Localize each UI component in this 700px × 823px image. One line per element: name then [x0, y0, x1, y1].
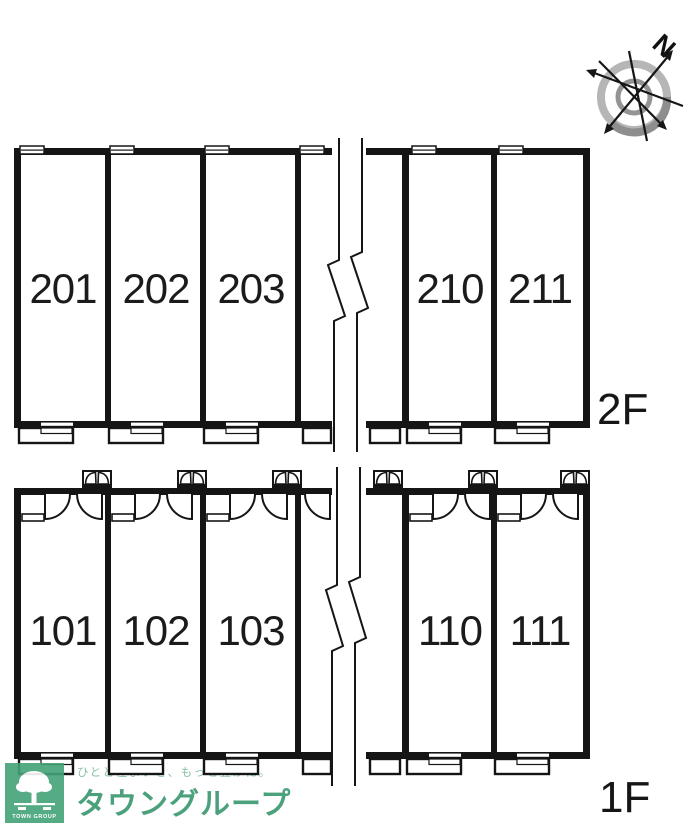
top-window-mark-line: [413, 150, 435, 151]
window-line: [429, 421, 461, 423]
room-label-201: 201: [17, 268, 109, 310]
entrance-window-sill: [498, 514, 520, 521]
top-window-mark-line: [301, 150, 323, 151]
window-line: [41, 421, 73, 423]
window-line: [131, 421, 163, 423]
room-label-210: 210: [404, 268, 496, 310]
entrance-door-swing: [465, 494, 490, 519]
top-window-mark-line: [21, 150, 43, 151]
entrance-window-sill: [410, 514, 432, 521]
balcony-window-sash: [226, 428, 257, 434]
entrance-door-swing: [521, 494, 546, 519]
entrance-door-swing-partial: [305, 494, 330, 519]
top-window-mark-line: [206, 150, 228, 151]
outer-wall-top-2f: [14, 148, 332, 155]
room-label-111: 111: [494, 610, 586, 652]
entrance-door-swing: [135, 494, 160, 519]
entrance-window-sill: [112, 514, 134, 521]
window-line: [517, 421, 549, 423]
room-label-103: 103: [205, 610, 297, 652]
break-line: [351, 138, 368, 452]
balcony-partial: [303, 428, 331, 443]
break-line: [328, 138, 345, 452]
room-label-203: 203: [205, 268, 297, 310]
balcony-window-sash: [429, 759, 460, 765]
top-window-mark-line: [111, 150, 133, 151]
window-line: [226, 752, 258, 754]
plan-linework: [14, 138, 590, 786]
compass-north-label: N: [647, 28, 682, 63]
floor-label-2f: 2F: [597, 388, 648, 432]
window-line: [41, 752, 73, 754]
entrance-door-swing: [45, 494, 70, 519]
balcony-window-sash: [131, 428, 162, 434]
window-line: [517, 752, 549, 754]
entrance-door-swing: [262, 494, 287, 519]
balcony-partial: [370, 759, 400, 774]
window-line: [226, 421, 258, 423]
logo-text: TOWN GROUP: [5, 814, 64, 820]
entrance-door-swing: [230, 494, 255, 519]
room-label-101: 101: [17, 610, 109, 652]
window-line: [131, 752, 163, 754]
entrance-door-swing: [167, 494, 192, 519]
balcony-partial: [303, 759, 331, 774]
balcony-window-sash: [429, 428, 460, 434]
room-label-211: 211: [494, 268, 586, 310]
entrance-door-swing: [77, 494, 102, 519]
room-label-202: 202: [110, 268, 202, 310]
top-window-mark-line: [500, 150, 522, 151]
outer-wall-top-2f: [366, 148, 590, 155]
compass-rose: N: [586, 28, 683, 141]
room-label-110: 110: [404, 610, 496, 652]
window-line: [429, 752, 461, 754]
break-line: [349, 467, 366, 786]
entrance-door-swing: [433, 494, 458, 519]
balcony-partial: [370, 428, 400, 443]
room-label-102: 102: [110, 610, 202, 652]
brand-company-name: タウングループ: [76, 779, 291, 823]
balcony-window-sash: [41, 428, 72, 434]
balcony-window-sash: [131, 759, 162, 765]
balcony-window-sash: [226, 759, 257, 765]
balcony-window-sash: [517, 428, 548, 434]
floor-label-1f: 1F: [599, 776, 650, 820]
floor-plan-drawing: N: [0, 0, 700, 823]
balcony-window-sash: [517, 759, 548, 765]
entrance-window-sill: [207, 514, 229, 521]
town-group-logo: TOWN GROUP: [5, 763, 64, 823]
entrance-window-sill: [22, 514, 44, 521]
entrance-door-swing: [553, 494, 578, 519]
floor-plan-canvas: ひとと住まいを、もっと豊かに。 N 201 202 203: [0, 0, 700, 823]
